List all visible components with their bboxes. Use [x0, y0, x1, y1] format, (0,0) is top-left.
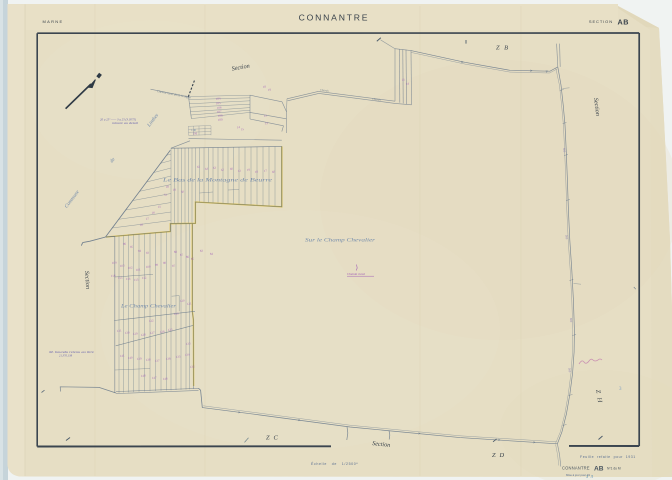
- svg-text:Échelle de 1/2500ᵉ: Échelle de 1/2500ᵉ: [311, 461, 358, 466]
- svg-text:102: 102: [128, 265, 133, 270]
- svg-text:Z C: Z C: [266, 435, 279, 442]
- svg-text:100: 100: [146, 264, 151, 269]
- svg-text:113: 113: [134, 277, 139, 281]
- svg-text:133: 133: [186, 341, 191, 346]
- svg-text:127: 127: [150, 330, 155, 335]
- svg-text:minore au detail: minore au detail: [112, 121, 138, 125]
- svg-text:116: 116: [111, 273, 116, 277]
- svg-text:104: 104: [112, 260, 117, 265]
- svg-text:Nº1 du M: Nº1 du M: [607, 467, 621, 471]
- svg-text:135: 135: [176, 354, 181, 359]
- svg-text:Le Champ Chevalier: Le Champ Chevalier: [120, 305, 177, 310]
- svg-text:Chemin rural: Chemin rural: [347, 272, 365, 276]
- svg-text:103: 103: [120, 263, 125, 268]
- svg-text:Z B: Z B: [496, 45, 510, 52]
- svg-text:146: 146: [163, 376, 168, 381]
- svg-text:137: 137: [155, 358, 160, 363]
- svg-text:130: 130: [125, 330, 130, 335]
- svg-text:148: 148: [141, 373, 146, 378]
- svg-text:132: 132: [190, 364, 195, 369]
- svg-text:121: 121: [187, 301, 192, 306]
- svg-text:MARNE: MARNE: [43, 19, 64, 24]
- svg-text:122: 122: [149, 318, 154, 323]
- svg-text:21.376.138: 21.376.138: [59, 353, 73, 357]
- svg-text:136: 136: [166, 356, 171, 361]
- svg-text:3 3: 3 3: [586, 474, 594, 479]
- svg-text:112: 112: [142, 275, 147, 279]
- svg-text:128: 128: [141, 332, 146, 337]
- svg-text:AB: AB: [594, 466, 604, 473]
- svg-text:138: 138: [146, 357, 151, 362]
- svg-text:134: 134: [185, 352, 190, 357]
- svg-text:126: 126: [160, 329, 165, 334]
- svg-text:129: 129: [133, 331, 138, 336]
- svg-text:147: 147: [152, 375, 157, 380]
- svg-text:Section: Section: [83, 271, 91, 290]
- svg-text:120: 120: [180, 298, 185, 303]
- svg-text:139: 139: [137, 356, 142, 361]
- svg-text:141: 141: [120, 353, 125, 358]
- svg-text:AB: AB: [618, 18, 629, 27]
- svg-text:131: 131: [117, 328, 122, 333]
- svg-text:CONNANTRE: CONNANTRE: [299, 13, 370, 23]
- svg-text:125: 125: [168, 327, 173, 332]
- svg-text:101: 101: [136, 267, 141, 272]
- svg-text:Le Bas de la Montagne de: Le Bas de la Montagne de Beurre: [161, 179, 272, 184]
- svg-text:SECTION: SECTION: [589, 19, 613, 24]
- svg-text:115: 115: [118, 275, 123, 279]
- svg-text:114: 114: [126, 276, 131, 280]
- svg-text:140: 140: [128, 355, 133, 360]
- svg-text:Feuille refaite pour 1931: Feuille refaite pour 1931: [580, 455, 636, 459]
- svg-text:Sur le Champ Chevalier: Sur le Champ Chevalier: [305, 239, 375, 244]
- svg-text:123: 123: [174, 311, 179, 316]
- svg-text:CONNANTRE: CONNANTRE: [562, 466, 590, 471]
- svg-text:190: 190: [193, 133, 198, 136]
- svg-text:Z D: Z D: [492, 452, 505, 459]
